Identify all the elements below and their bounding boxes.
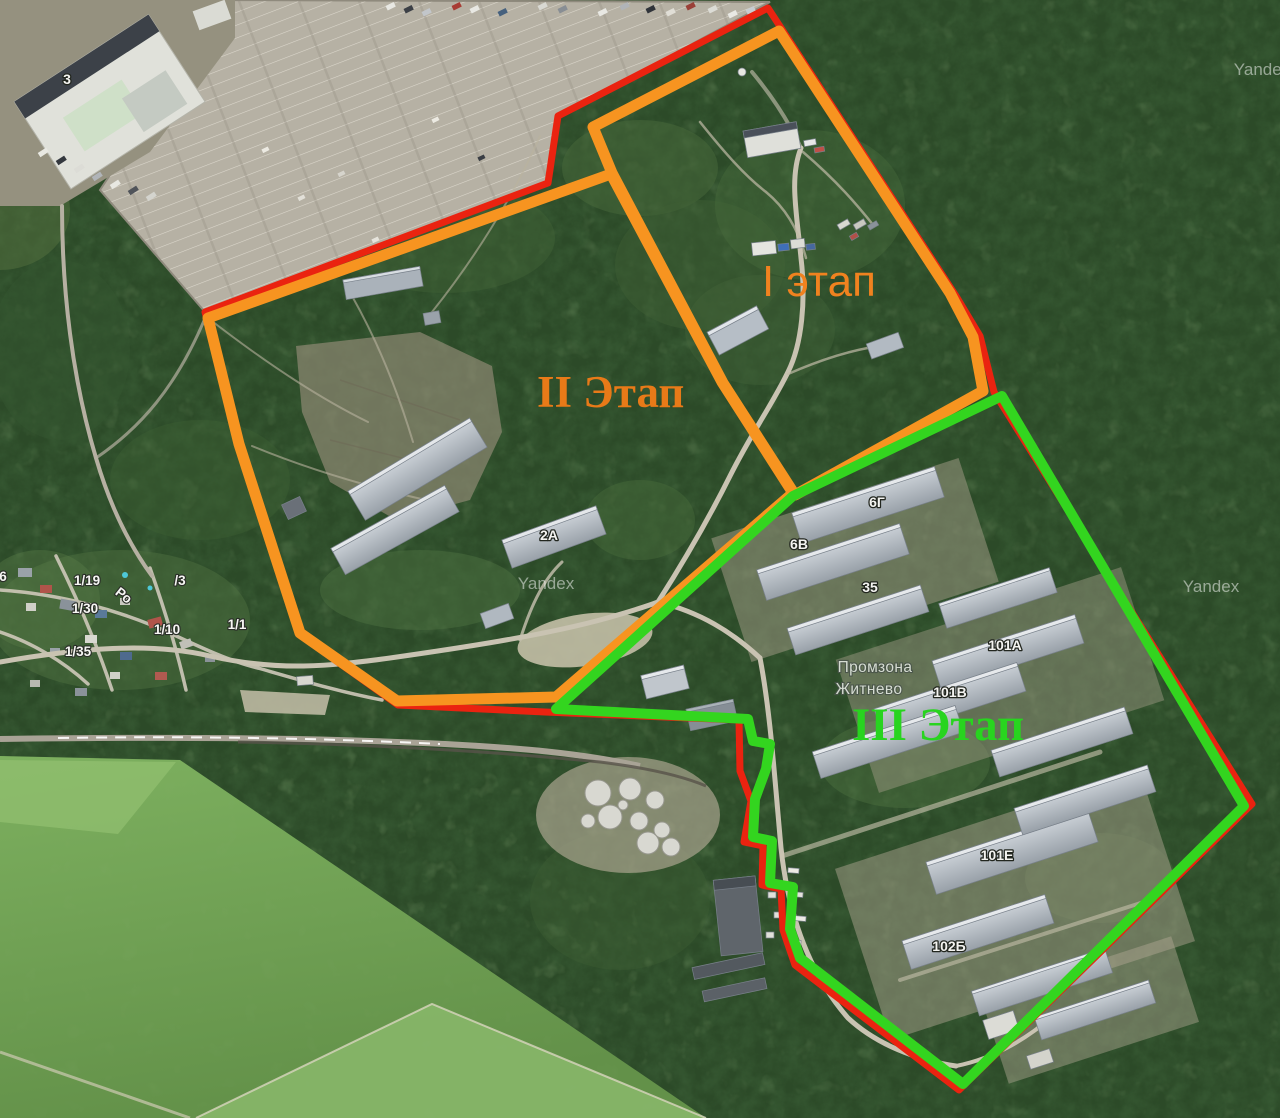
yandex-watermark-center: Yandex <box>518 574 575 593</box>
building-label-2a: 2А <box>540 527 558 543</box>
parcel-label-1-19: 1/19 <box>74 573 100 588</box>
place-label-line2: Житнево <box>836 681 903 698</box>
satellite-map-canvas[interactable]: 3 2А 6Г 6В 35 101А 101В 101Е 102Б 6 1/19… <box>0 0 1280 1118</box>
parcel-label-3: /3 <box>174 573 186 588</box>
building-label-102b: 102Б <box>932 938 965 954</box>
building-label-101v: 101В <box>933 684 966 700</box>
building-label-101a: 101А <box>988 637 1021 653</box>
yandex-watermark-right: Yandex <box>1183 577 1240 596</box>
parcel-label-1-30: 1/30 <box>72 601 98 616</box>
building-label-3: 3 <box>63 71 71 87</box>
parcel-label-1-10: 1/10 <box>154 622 180 637</box>
parcel-label-1-35: 1/35 <box>65 644 92 659</box>
phase-1-label: I этап <box>762 257 876 306</box>
place-label-line1: Промзона <box>838 659 913 676</box>
parcel-label-6: 6 <box>0 569 7 584</box>
phase-2-label: II Этап <box>537 367 684 417</box>
yandex-watermark-top-right: Yandex <box>1234 60 1280 79</box>
building-label-101e: 101Е <box>981 847 1014 863</box>
phase-3-label: III Этап <box>852 699 1024 751</box>
building-label-6v: 6В <box>790 536 808 552</box>
parcel-label-1-1: 1/1 <box>228 617 247 632</box>
building-label-35: 35 <box>862 579 878 595</box>
building-label-6g: 6Г <box>869 494 885 510</box>
